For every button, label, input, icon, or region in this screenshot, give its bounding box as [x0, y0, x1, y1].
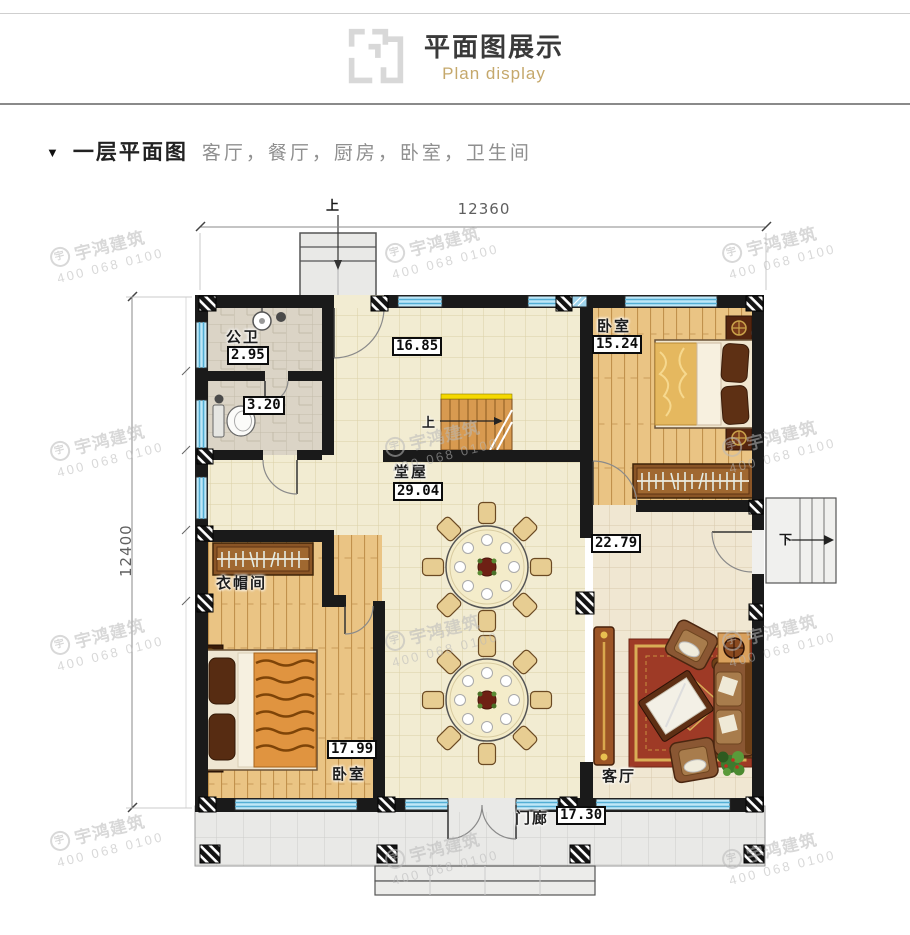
- stairs-down-label: 下: [779, 529, 792, 548]
- stairs-up-label: 上: [422, 412, 435, 431]
- area-porch: 17.30: [556, 806, 606, 825]
- right-exterior-stair: [766, 498, 836, 583]
- dimension-height: 12400: [117, 517, 135, 577]
- floor-plan-drawing: [0, 0, 910, 935]
- room-label-hall: 堂屋: [394, 461, 428, 482]
- room-label-porch: 门廊: [515, 807, 549, 828]
- bed-bottom-left: [197, 645, 317, 772]
- dimension-width: 12360: [438, 200, 530, 218]
- area-toilet: 3.20: [243, 396, 285, 415]
- room-label-bath: 公卫: [226, 326, 260, 347]
- interior-staircase: [440, 394, 512, 450]
- page: 平面图展示 Plan display ▼ 一层平面图 客厅，餐厅，厨房，卧室，卫…: [0, 0, 910, 935]
- area-family: 22.79: [591, 534, 641, 553]
- area-bedroom-left: 17.99: [327, 740, 377, 759]
- area-dining: 16.85: [392, 337, 442, 356]
- porch-floor: [195, 806, 765, 895]
- dining-table-lower: [423, 636, 552, 765]
- area-bedroom-right: 15.24: [592, 335, 642, 354]
- room-label-cloakroom: 衣帽间: [216, 572, 267, 593]
- area-hall: 29.04: [393, 482, 443, 501]
- side-door-opening: [752, 530, 764, 574]
- room-label-living: 客厅: [602, 765, 636, 786]
- stairs-up-label-top: 上: [326, 195, 339, 214]
- cloakroom-wardrobe: [213, 543, 313, 575]
- area-bath: 2.95: [227, 346, 269, 365]
- room-label-bedroom-left: 卧室: [332, 763, 366, 784]
- wardrobe-top-right: [633, 464, 753, 498]
- room-label-bedroom-right: 卧室: [597, 315, 631, 336]
- dining-table-upper: [423, 503, 552, 632]
